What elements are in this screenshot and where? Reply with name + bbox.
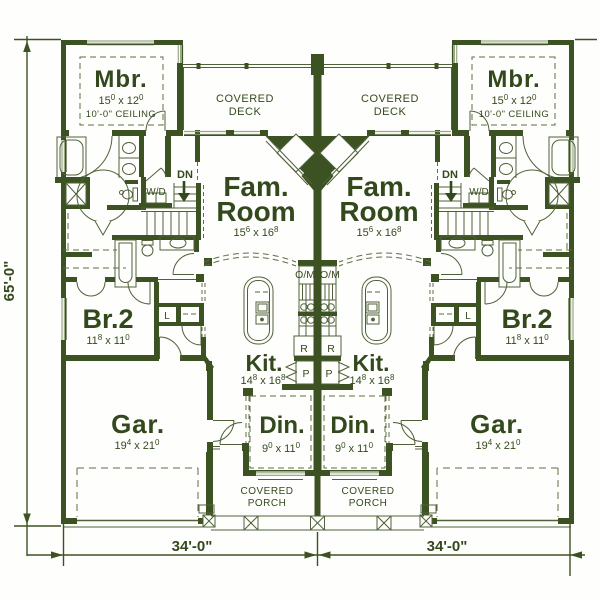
svg-text:L: L	[465, 311, 471, 322]
svg-text:DN: DN	[177, 169, 193, 181]
svg-text:118 x 110: 118 x 110	[505, 333, 549, 347]
svg-text:Br.2: Br.2	[501, 304, 552, 334]
svg-text:COVERED: COVERED	[216, 93, 274, 105]
svg-text:DN: DN	[442, 169, 458, 181]
svg-text:Gar.: Gar.	[470, 409, 524, 439]
svg-text:Room: Room	[216, 196, 295, 227]
svg-text:PORCH: PORCH	[248, 498, 287, 509]
svg-text:L: L	[164, 311, 170, 322]
svg-text:Kit.: Kit.	[245, 350, 282, 376]
svg-text:Din.: Din.	[330, 412, 375, 439]
svg-text:Kit.: Kit.	[352, 350, 389, 376]
svg-text:Br.2: Br.2	[82, 304, 133, 334]
svg-text:Din.: Din.	[259, 412, 304, 439]
svg-text:O/M: O/M	[295, 269, 315, 281]
svg-text:DECK: DECK	[229, 106, 262, 118]
svg-text:194 x 210: 194 x 210	[475, 438, 521, 452]
svg-text:O/M: O/M	[320, 269, 340, 281]
svg-text:148 x 168: 148 x 168	[349, 373, 395, 387]
svg-text:DECK: DECK	[374, 106, 407, 118]
svg-text:R: R	[300, 343, 308, 355]
svg-text:150 x 120: 150 x 120	[491, 93, 537, 107]
svg-text:P: P	[325, 368, 332, 380]
svg-text:Gar.: Gar.	[111, 409, 165, 439]
svg-text:Room: Room	[339, 196, 418, 227]
svg-text:R: R	[327, 343, 335, 355]
svg-text:118 x 110: 118 x 110	[86, 333, 130, 347]
svg-text:156 x 168: 156 x 168	[356, 225, 402, 239]
svg-text:34'-0": 34'-0"	[427, 538, 468, 555]
svg-text:150 x 120: 150 x 120	[98, 93, 144, 107]
svg-text:COVERED: COVERED	[361, 93, 419, 105]
svg-text:W/D: W/D	[469, 187, 488, 198]
svg-text:156 x 168: 156 x 168	[233, 225, 279, 239]
svg-text:148 x 168: 148 x 168	[240, 373, 286, 387]
svg-text:10'-0" CEILING: 10'-0" CEILING	[86, 109, 156, 120]
svg-text:P: P	[302, 368, 309, 380]
svg-text:COVERED: COVERED	[241, 486, 294, 497]
svg-text:90 x 110: 90 x 110	[262, 441, 301, 455]
svg-text:90 x 110: 90 x 110	[335, 441, 374, 455]
svg-text:34'-0": 34'-0"	[172, 538, 213, 555]
svg-text:PORCH: PORCH	[349, 498, 388, 509]
svg-text:65'-0": 65'-0"	[1, 261, 18, 302]
svg-text:10'-0" CEILING: 10'-0" CEILING	[479, 109, 549, 120]
svg-text:COVERED: COVERED	[342, 486, 395, 497]
svg-text:Mbr.: Mbr.	[94, 66, 147, 93]
svg-text:W/D: W/D	[146, 187, 165, 198]
svg-text:194 x 210: 194 x 210	[114, 438, 160, 452]
svg-text:Mbr.: Mbr.	[487, 66, 540, 93]
